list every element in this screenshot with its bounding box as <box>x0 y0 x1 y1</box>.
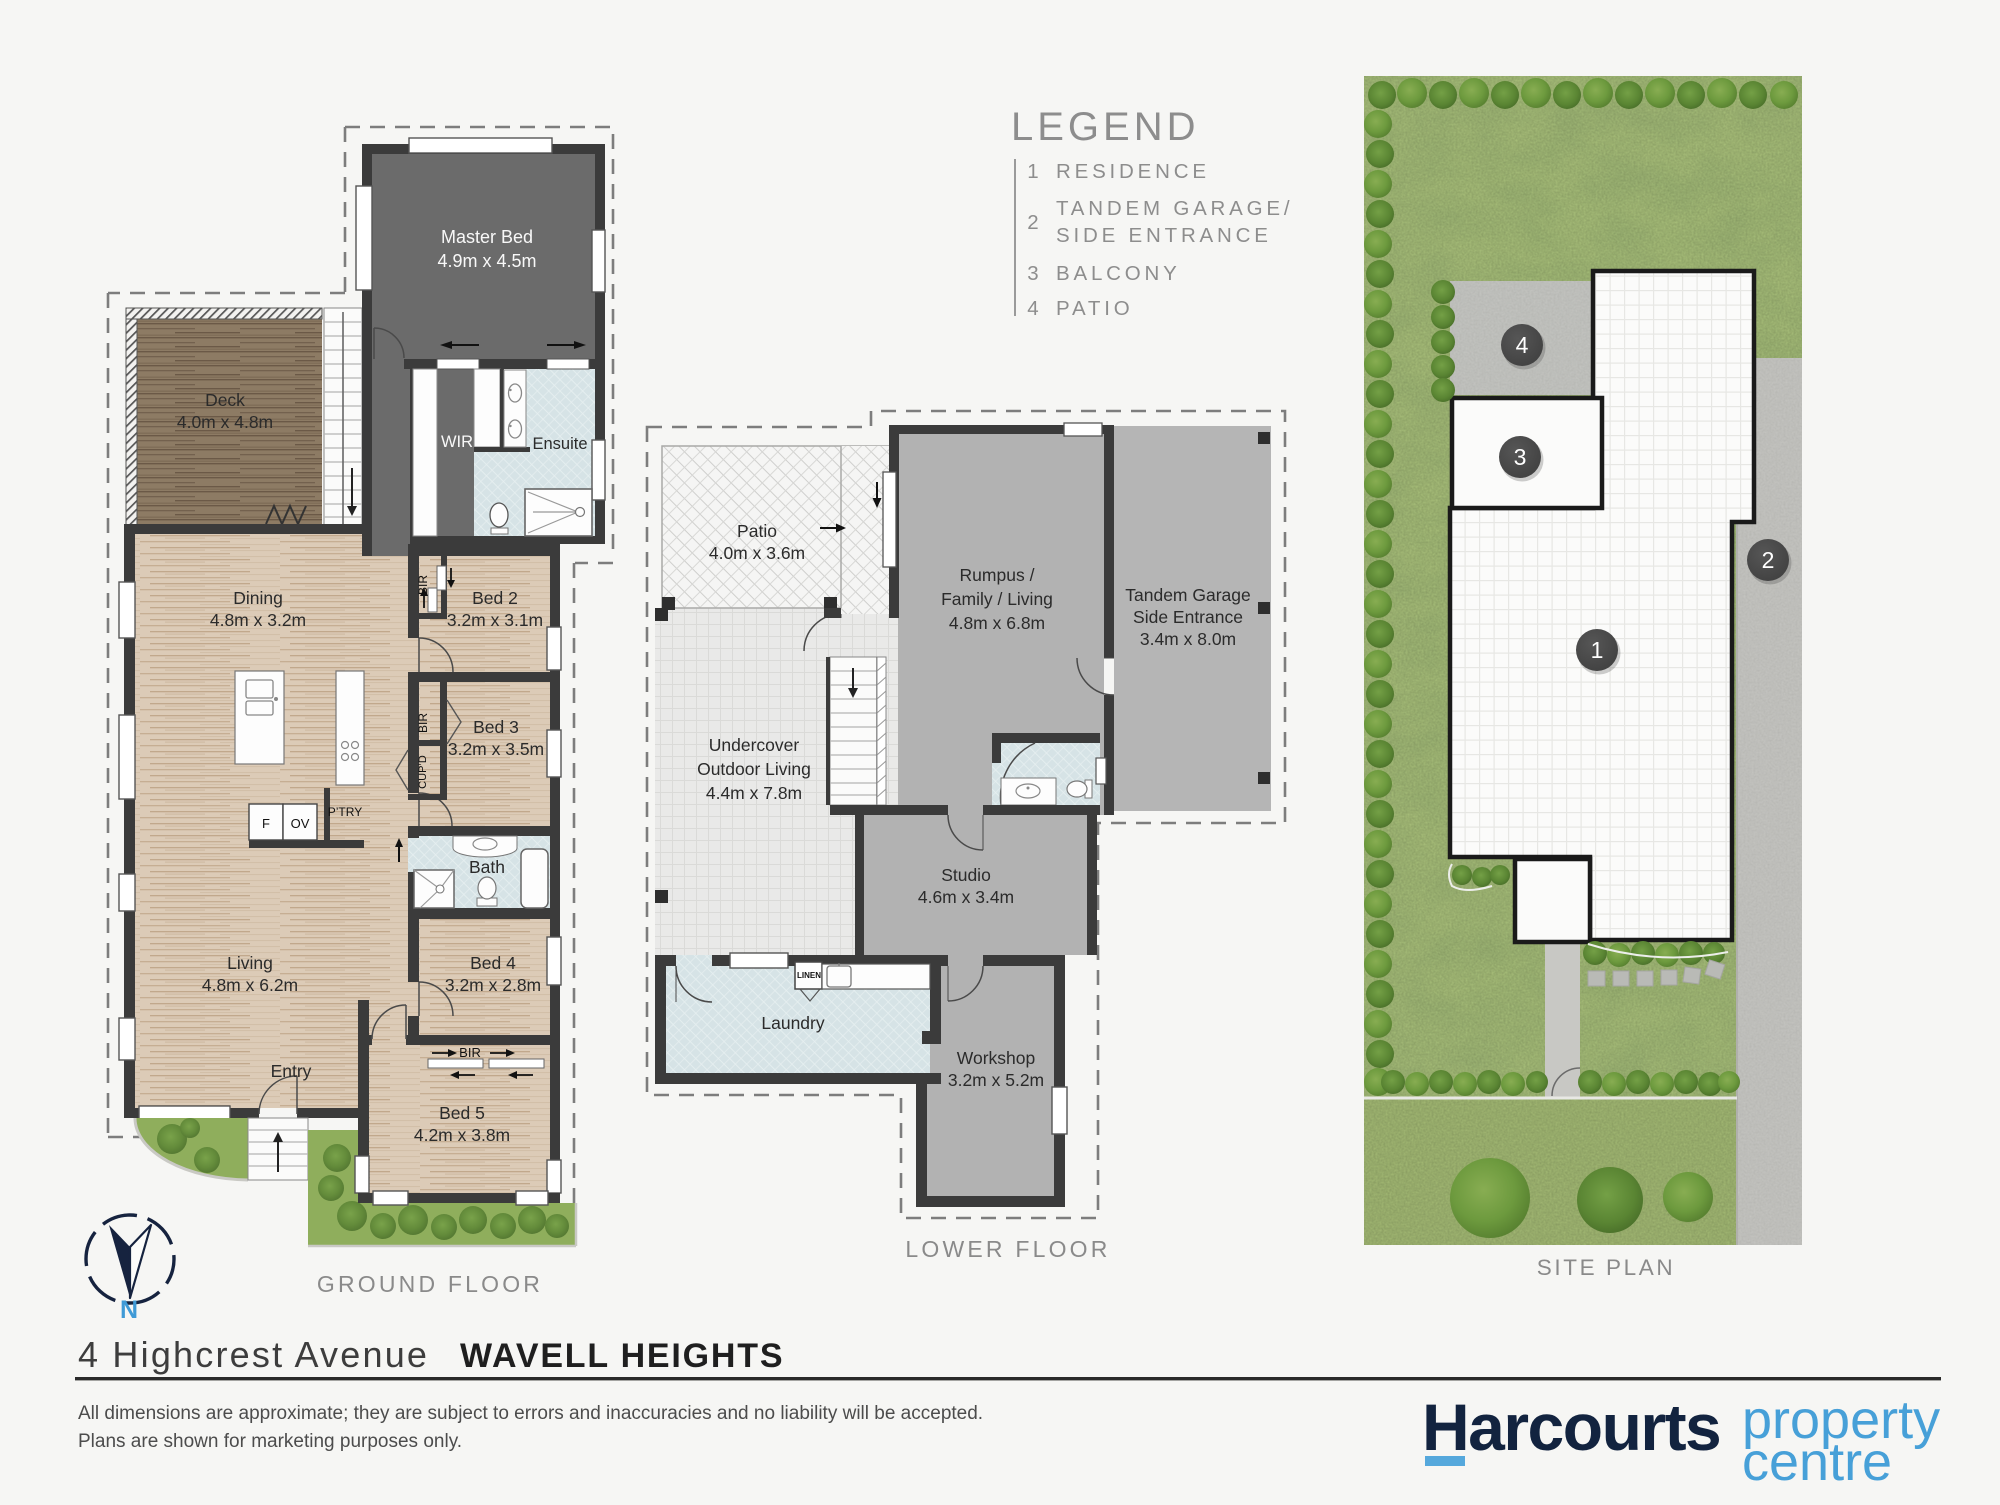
svg-text:BIR: BIR <box>416 575 430 595</box>
svg-text:LOWER FLOOR: LOWER FLOOR <box>905 1236 1110 1262</box>
svg-text:Side Entrance: Side Entrance <box>1133 607 1243 627</box>
svg-text:WAVELL HEIGHTS: WAVELL HEIGHTS <box>460 1337 784 1375</box>
svg-text:3.4m x 8.0m: 3.4m x 8.0m <box>1140 629 1236 649</box>
svg-text:PATIO: PATIO <box>1056 297 1133 320</box>
svg-text:F: F <box>262 816 270 831</box>
svg-text:2: 2 <box>1762 547 1775 573</box>
svg-text:3: 3 <box>1027 262 1038 285</box>
svg-text:4: 4 <box>1027 297 1038 320</box>
svg-text:Entry: Entry <box>271 1061 312 1081</box>
svg-text:4: 4 <box>1516 332 1529 358</box>
svg-text:Ensuite: Ensuite <box>532 435 587 453</box>
svg-text:Workshop: Workshop <box>957 1048 1035 1068</box>
svg-text:TANDEM GARAGE/: TANDEM GARAGE/ <box>1056 197 1293 220</box>
svg-text:LEGEND: LEGEND <box>1011 105 1200 149</box>
svg-text:WIR: WIR <box>441 433 473 451</box>
svg-text:4.8m x 6.8m: 4.8m x 6.8m <box>949 613 1045 633</box>
svg-text:4 Highcrest Avenue: 4 Highcrest Avenue <box>78 1334 429 1375</box>
svg-text:4.8m x 6.2m: 4.8m x 6.2m <box>202 975 298 995</box>
svg-text:Bed 5: Bed 5 <box>439 1103 485 1123</box>
svg-text:Outdoor Living: Outdoor Living <box>697 759 811 779</box>
svg-text:3.2m x 3.5m: 3.2m x 3.5m <box>448 739 544 759</box>
svg-text:Harcourts: Harcourts <box>1422 1390 1720 1464</box>
svg-text:4.9m x 4.5m: 4.9m x 4.5m <box>437 251 536 271</box>
svg-text:4.8m x 3.2m: 4.8m x 3.2m <box>210 610 306 630</box>
svg-text:Tandem Garage: Tandem Garage <box>1125 585 1251 605</box>
svg-text:BALCONY: BALCONY <box>1056 262 1181 285</box>
svg-text:Dining: Dining <box>233 588 283 608</box>
svg-text:4.2m x 3.8m: 4.2m x 3.8m <box>414 1125 510 1145</box>
svg-text:4.0m x 4.8m: 4.0m x 4.8m <box>177 412 273 432</box>
svg-text:4.6m x 3.4m: 4.6m x 3.4m <box>918 887 1014 907</box>
svg-text:Studio: Studio <box>941 865 991 885</box>
svg-text:Rumpus /: Rumpus / <box>960 565 1035 585</box>
svg-text:Family / Living: Family / Living <box>941 589 1053 609</box>
svg-text:SITE PLAN: SITE PLAN <box>1537 1255 1675 1280</box>
svg-text:Laundry: Laundry <box>761 1013 824 1033</box>
svg-text:centre: centre <box>1742 1432 1892 1492</box>
svg-text:N: N <box>120 1296 138 1324</box>
svg-text:LINEN: LINEN <box>797 971 821 980</box>
svg-text:Bed 4: Bed 4 <box>470 953 516 973</box>
svg-text:BIR: BIR <box>459 1045 481 1060</box>
svg-text:Plans are shown for marketing: Plans are shown for marketing purposes o… <box>78 1431 462 1452</box>
svg-text:OV: OV <box>291 816 310 831</box>
svg-text:Undercover: Undercover <box>709 735 800 755</box>
svg-text:4.0m x 3.6m: 4.0m x 3.6m <box>709 543 805 563</box>
svg-text:4.4m x 7.8m: 4.4m x 7.8m <box>706 783 802 803</box>
svg-text:3: 3 <box>1514 444 1527 470</box>
svg-text:Deck: Deck <box>205 390 245 410</box>
svg-text:RESIDENCE: RESIDENCE <box>1056 160 1210 183</box>
svg-text:GROUND FLOOR: GROUND FLOOR <box>317 1271 543 1297</box>
svg-text:Living: Living <box>227 953 273 973</box>
svg-text:3.2m x 5.2m: 3.2m x 5.2m <box>948 1070 1044 1090</box>
svg-text:1: 1 <box>1591 637 1604 663</box>
svg-text:3.2m x 2.8m: 3.2m x 2.8m <box>445 975 541 995</box>
svg-text:1: 1 <box>1027 160 1038 183</box>
svg-text:Patio: Patio <box>737 521 777 541</box>
svg-text:P’TRY: P’TRY <box>328 805 362 819</box>
svg-text:2: 2 <box>1027 211 1038 234</box>
svg-text:3.2m x 3.1m: 3.2m x 3.1m <box>447 610 543 630</box>
svg-text:BIR: BIR <box>416 713 430 733</box>
svg-text:All dimensions are approximate: All dimensions are approximate; they are… <box>78 1403 983 1424</box>
svg-text:Master Bed: Master Bed <box>441 227 533 247</box>
svg-text:CUP’D: CUP’D <box>417 755 429 789</box>
svg-text:Bath: Bath <box>469 857 505 877</box>
svg-text:SIDE ENTRANCE: SIDE ENTRANCE <box>1056 224 1272 247</box>
svg-text:Bed 2: Bed 2 <box>472 588 518 608</box>
svg-text:Bed 3: Bed 3 <box>473 717 519 737</box>
